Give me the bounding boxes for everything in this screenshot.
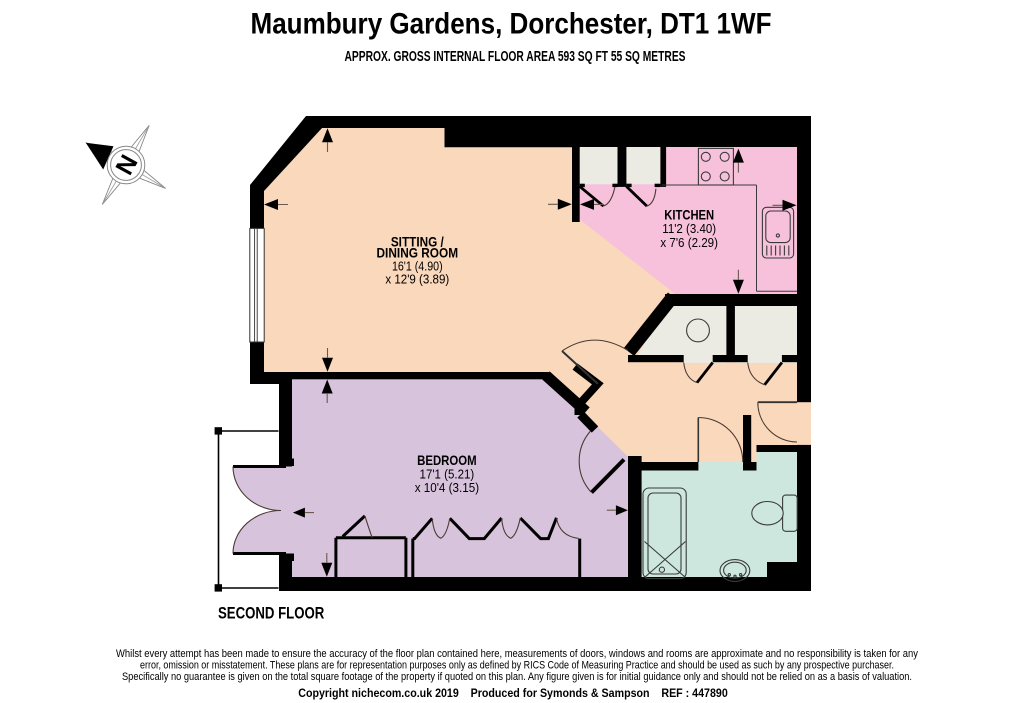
svg-text:16'1 (4.90): 16'1 (4.90) — [392, 259, 443, 273]
svg-text:KITCHEN: KITCHEN — [664, 208, 714, 223]
svg-text:Copyright nichecom.co.uk 2019: Copyright nichecom.co.uk 2019 Produced f… — [298, 686, 728, 700]
svg-text:BEDROOM: BEDROOM — [417, 453, 477, 468]
svg-text:x 12'9 (3.89): x 12'9 (3.89) — [385, 273, 449, 287]
svg-text:APPROX. GROSS INTERNAL FLOOR A: APPROX. GROSS INTERNAL FLOOR AREA 593 SQ… — [345, 49, 686, 65]
svg-text:x 7'6 (2.29): x 7'6 (2.29) — [660, 236, 718, 250]
svg-text:17'1 (5.21): 17'1 (5.21) — [420, 468, 475, 482]
svg-text:x 10'4 (3.15): x 10'4 (3.15) — [415, 481, 479, 495]
svg-text:DINING ROOM: DINING ROOM — [377, 245, 459, 260]
svg-text:Specifically no guarantee is g: Specifically no guarantee is given on th… — [122, 671, 912, 683]
svg-text:Whilst every attempt has been: Whilst every attempt has been made to en… — [116, 648, 918, 660]
svg-text:SECOND FLOOR: SECOND FLOOR — [218, 605, 324, 623]
svg-text:11'2 (3.40): 11'2 (3.40) — [662, 222, 716, 236]
svg-text:Maumbury Gardens, Dorchester,: Maumbury Gardens, Dorchester, DT1 1WF — [251, 8, 772, 41]
svg-text:error, omission or misstatemen: error, omission or misstatement. These p… — [140, 660, 894, 672]
